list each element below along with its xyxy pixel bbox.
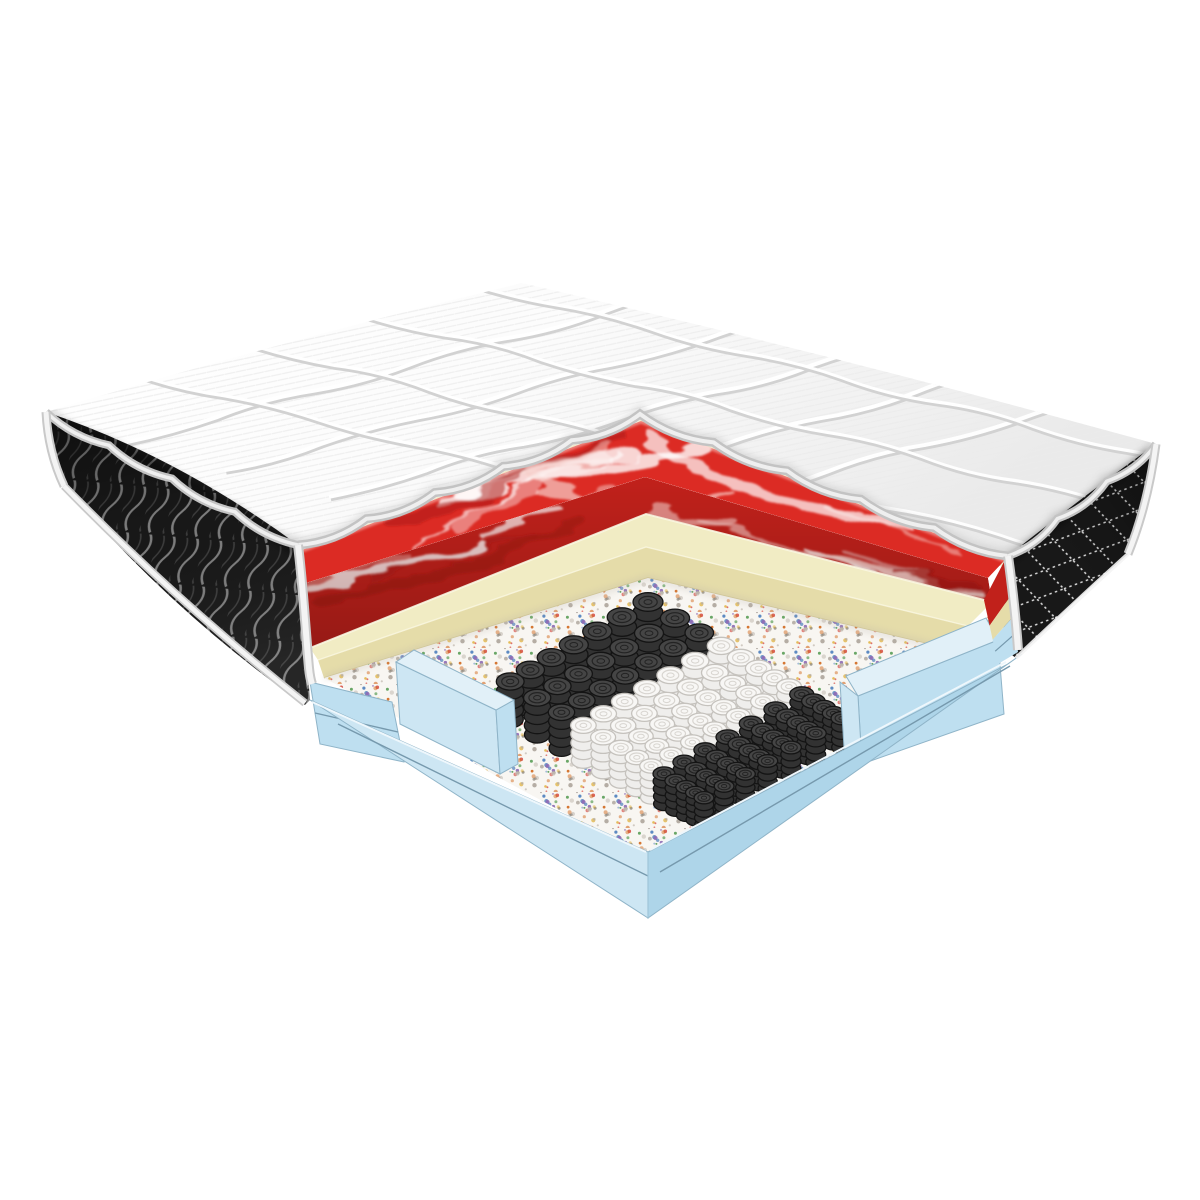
mattress-cutaway-canvas bbox=[0, 0, 1200, 1200]
mattress-cutaway-illustration bbox=[0, 0, 1200, 1200]
